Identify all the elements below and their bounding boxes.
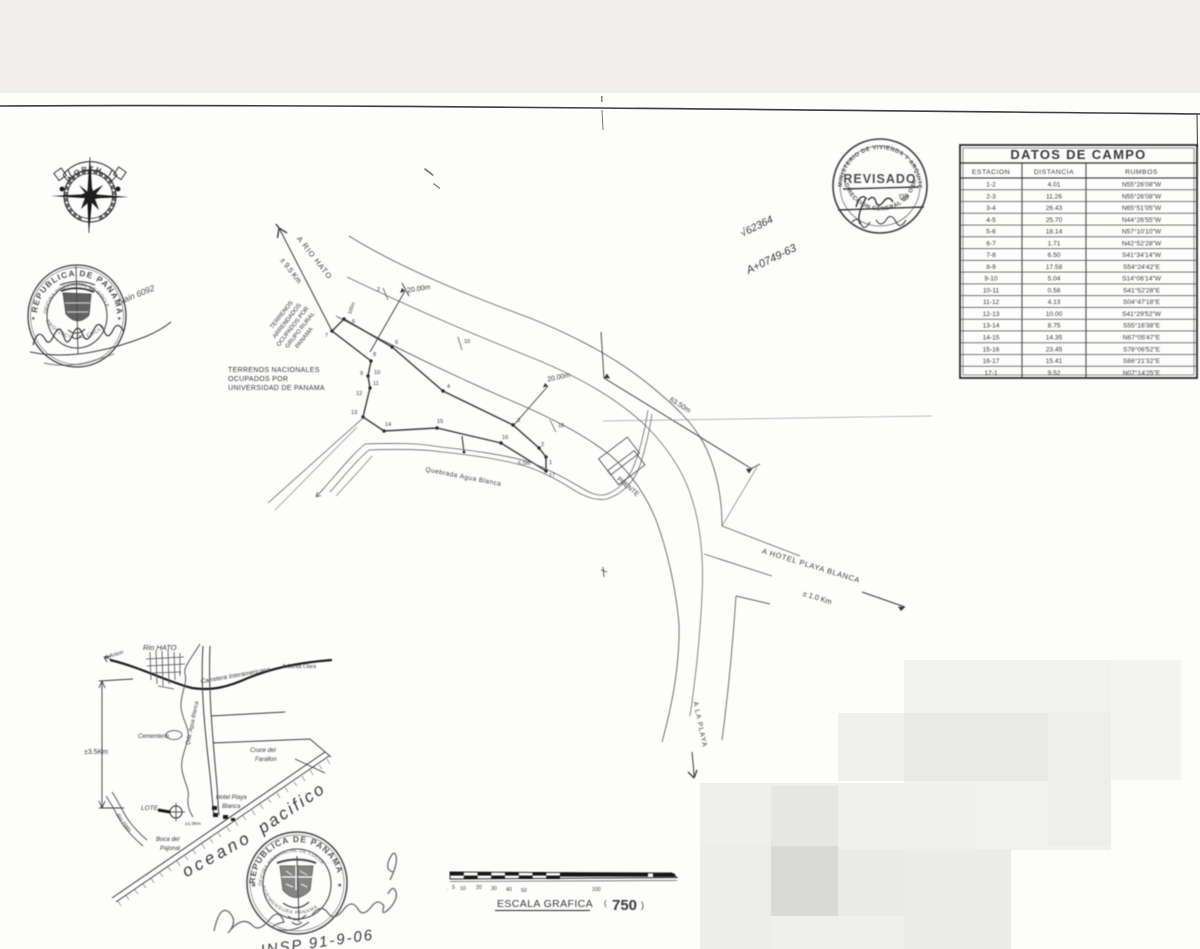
svg-text:N55°26'08"W: N55°26'08"W bbox=[1122, 181, 1162, 189]
svg-text:S41°34'14"W: S41°34'14"W bbox=[1122, 251, 1162, 259]
svg-text:10: 10 bbox=[464, 339, 470, 345]
svg-text:★: ★ bbox=[337, 882, 342, 889]
svg-text:Cruce del: Cruce del bbox=[250, 748, 276, 754]
svg-text:14: 14 bbox=[385, 422, 391, 428]
svg-text:.: . bbox=[447, 886, 448, 892]
svg-text:2: 2 bbox=[377, 287, 380, 293]
svg-text:6: 6 bbox=[352, 319, 355, 325]
svg-text:26.43: 26.43 bbox=[1046, 205, 1063, 212]
svg-text:8: 8 bbox=[373, 352, 376, 358]
svg-text:11.26: 11.26 bbox=[1046, 193, 1062, 200]
svg-text:★: ★ bbox=[251, 882, 256, 889]
svg-text:): ) bbox=[641, 900, 644, 910]
svg-text:0.58: 0.58 bbox=[1048, 287, 1061, 294]
svg-text:16-17: 16-17 bbox=[983, 358, 1000, 365]
svg-text:±1.0km: ±1.0km bbox=[185, 821, 201, 827]
svg-text:±3.5Km: ±3.5Km bbox=[84, 749, 108, 756]
svg-text:Rio HATO: Rio HATO bbox=[143, 643, 177, 652]
svg-text:N44°26'55"W: N44°26'55"W bbox=[1122, 216, 1162, 224]
svg-text:A Santa Clara: A Santa Clara bbox=[281, 664, 316, 670]
svg-text:N07°14'25"E: N07°14'25"E bbox=[1123, 369, 1161, 377]
svg-text:10.00: 10.00 bbox=[1046, 311, 1063, 318]
svg-text:10: 10 bbox=[460, 886, 466, 892]
svg-text:S78°06'52"E: S78°06'52"E bbox=[1123, 345, 1161, 353]
svg-text:17.58: 17.58 bbox=[1046, 264, 1063, 271]
svg-text:REVISADO: REVISADO bbox=[843, 172, 916, 186]
svg-text:S54°24'42"E: S54°24'42"E bbox=[1123, 263, 1161, 271]
svg-text:4.01: 4.01 bbox=[1048, 182, 1061, 189]
svg-text:15: 15 bbox=[437, 419, 443, 425]
svg-text:5: 5 bbox=[395, 340, 398, 346]
svg-text:Cementerio: Cementerio bbox=[138, 734, 170, 740]
svg-text:★: ★ bbox=[117, 316, 122, 322]
svg-text:30: 30 bbox=[491, 886, 497, 892]
svg-text:UNIVERSIDAD DE PANAMA: UNIVERSIDAD DE PANAMA bbox=[228, 385, 325, 392]
svg-text:10-11: 10-11 bbox=[983, 287, 1000, 294]
svg-text:20: 20 bbox=[476, 885, 482, 891]
svg-text:1-2: 1-2 bbox=[986, 182, 996, 189]
svg-text:OCUPADOS POR: OCUPADOS POR bbox=[228, 376, 288, 383]
svg-text:12-13: 12-13 bbox=[983, 311, 1000, 318]
svg-text:11-12: 11-12 bbox=[983, 299, 1000, 306]
svg-text:Pajonal: Pajonal bbox=[160, 846, 181, 852]
svg-text:1: 1 bbox=[549, 460, 552, 466]
svg-text:13: 13 bbox=[351, 410, 357, 416]
svg-text:2: 2 bbox=[541, 442, 544, 448]
svg-text:9: 9 bbox=[360, 371, 363, 377]
svg-text:15.41: 15.41 bbox=[1046, 358, 1063, 365]
svg-text:17-1: 17-1 bbox=[984, 370, 998, 377]
svg-text:(: ( bbox=[604, 899, 607, 908]
svg-text:7-8: 7-8 bbox=[986, 252, 996, 259]
svg-text:N67°05'47"E: N67°05'47"E bbox=[1123, 334, 1161, 342]
svg-text:Farallon: Farallon bbox=[255, 757, 277, 763]
svg-text:DISTANCIA: DISTANCIA bbox=[1034, 169, 1074, 176]
svg-text:11: 11 bbox=[373, 381, 379, 387]
svg-text:5.04: 5.04 bbox=[1048, 276, 1061, 283]
svg-text:Boca del: Boca del bbox=[156, 837, 180, 843]
svg-text:★: ★ bbox=[31, 316, 36, 322]
svg-text:14.35: 14.35 bbox=[1046, 335, 1063, 342]
svg-text:S14°06'14"W: S14°06'14"W bbox=[1122, 275, 1162, 283]
svg-text:40: 40 bbox=[506, 887, 512, 893]
svg-text:750: 750 bbox=[612, 897, 637, 914]
svg-text:10: 10 bbox=[374, 370, 380, 376]
svg-text:N55°26'08"W: N55°26'08"W bbox=[1122, 192, 1162, 200]
svg-text:ESTACION: ESTACION bbox=[972, 169, 1010, 176]
svg-text:N57°10'10"W: N57°10'10"W bbox=[1122, 228, 1162, 236]
svg-text:S41°29'52"W: S41°29'52"W bbox=[1122, 310, 1162, 318]
svg-text:5-6: 5-6 bbox=[986, 229, 996, 236]
svg-text:7: 7 bbox=[325, 333, 328, 339]
svg-text:5: 5 bbox=[452, 885, 455, 891]
svg-text:18.14: 18.14 bbox=[1046, 229, 1063, 236]
svg-text:14-15: 14-15 bbox=[983, 335, 1000, 342]
svg-text:13-14: 13-14 bbox=[983, 323, 1000, 330]
svg-text:8.75: 8.75 bbox=[1048, 323, 1061, 330]
svg-text:S04°47'18"E: S04°47'18"E bbox=[1123, 298, 1161, 306]
svg-text:100: 100 bbox=[592, 887, 601, 893]
svg-text:S41°52'28"E: S41°52'28"E bbox=[1123, 286, 1161, 294]
svg-text:LOTE: LOTE bbox=[141, 805, 159, 812]
svg-text:23.45: 23.45 bbox=[1046, 346, 1063, 353]
svg-text:15-16: 15-16 bbox=[983, 346, 1000, 353]
svg-text:25.70: 25.70 bbox=[1046, 217, 1063, 224]
svg-text:8-9: 8-9 bbox=[986, 264, 996, 271]
svg-text:6-7: 6-7 bbox=[986, 240, 996, 247]
svg-text:4-5: 4-5 bbox=[986, 217, 996, 224]
svg-text:RUMBOS: RUMBOS bbox=[1125, 169, 1158, 176]
svg-text:6.50: 6.50 bbox=[1048, 252, 1061, 259]
svg-text:18: 18 bbox=[558, 423, 564, 429]
svg-text:3: 3 bbox=[517, 418, 520, 424]
svg-text:TERRENOS NACIONALES: TERRENOS NACIONALES bbox=[228, 367, 320, 374]
svg-text:16: 16 bbox=[502, 435, 508, 441]
svg-text:Hotel Playa: Hotel Playa bbox=[216, 795, 247, 801]
svg-text:DATOS DE CAMPO: DATOS DE CAMPO bbox=[1010, 147, 1146, 162]
svg-text:S55°16'38"E: S55°16'38"E bbox=[1123, 322, 1161, 330]
svg-text:N42°52'28"W: N42°52'28"W bbox=[1122, 239, 1162, 247]
svg-text:1.71: 1.71 bbox=[1048, 240, 1061, 247]
svg-text:50: 50 bbox=[521, 888, 527, 894]
svg-text:ESCALA GRAFICA: ESCALA GRAFICA bbox=[497, 898, 593, 910]
svg-text:S66°21'32"E: S66°21'32"E bbox=[1123, 357, 1161, 365]
svg-text:12: 12 bbox=[356, 391, 362, 397]
svg-text:Blanca: Blanca bbox=[222, 804, 241, 810]
svg-text:3-4: 3-4 bbox=[986, 205, 996, 212]
svg-text:9.52: 9.52 bbox=[1048, 370, 1061, 377]
svg-text:4: 4 bbox=[447, 384, 450, 390]
svg-text:'08: '08 bbox=[898, 193, 909, 202]
svg-text:N65°51'05"W: N65°51'05"W bbox=[1122, 204, 1162, 212]
svg-text:2-3: 2-3 bbox=[986, 193, 996, 200]
svg-text:9-10: 9-10 bbox=[984, 276, 998, 283]
svg-text:4.13: 4.13 bbox=[1048, 299, 1061, 306]
